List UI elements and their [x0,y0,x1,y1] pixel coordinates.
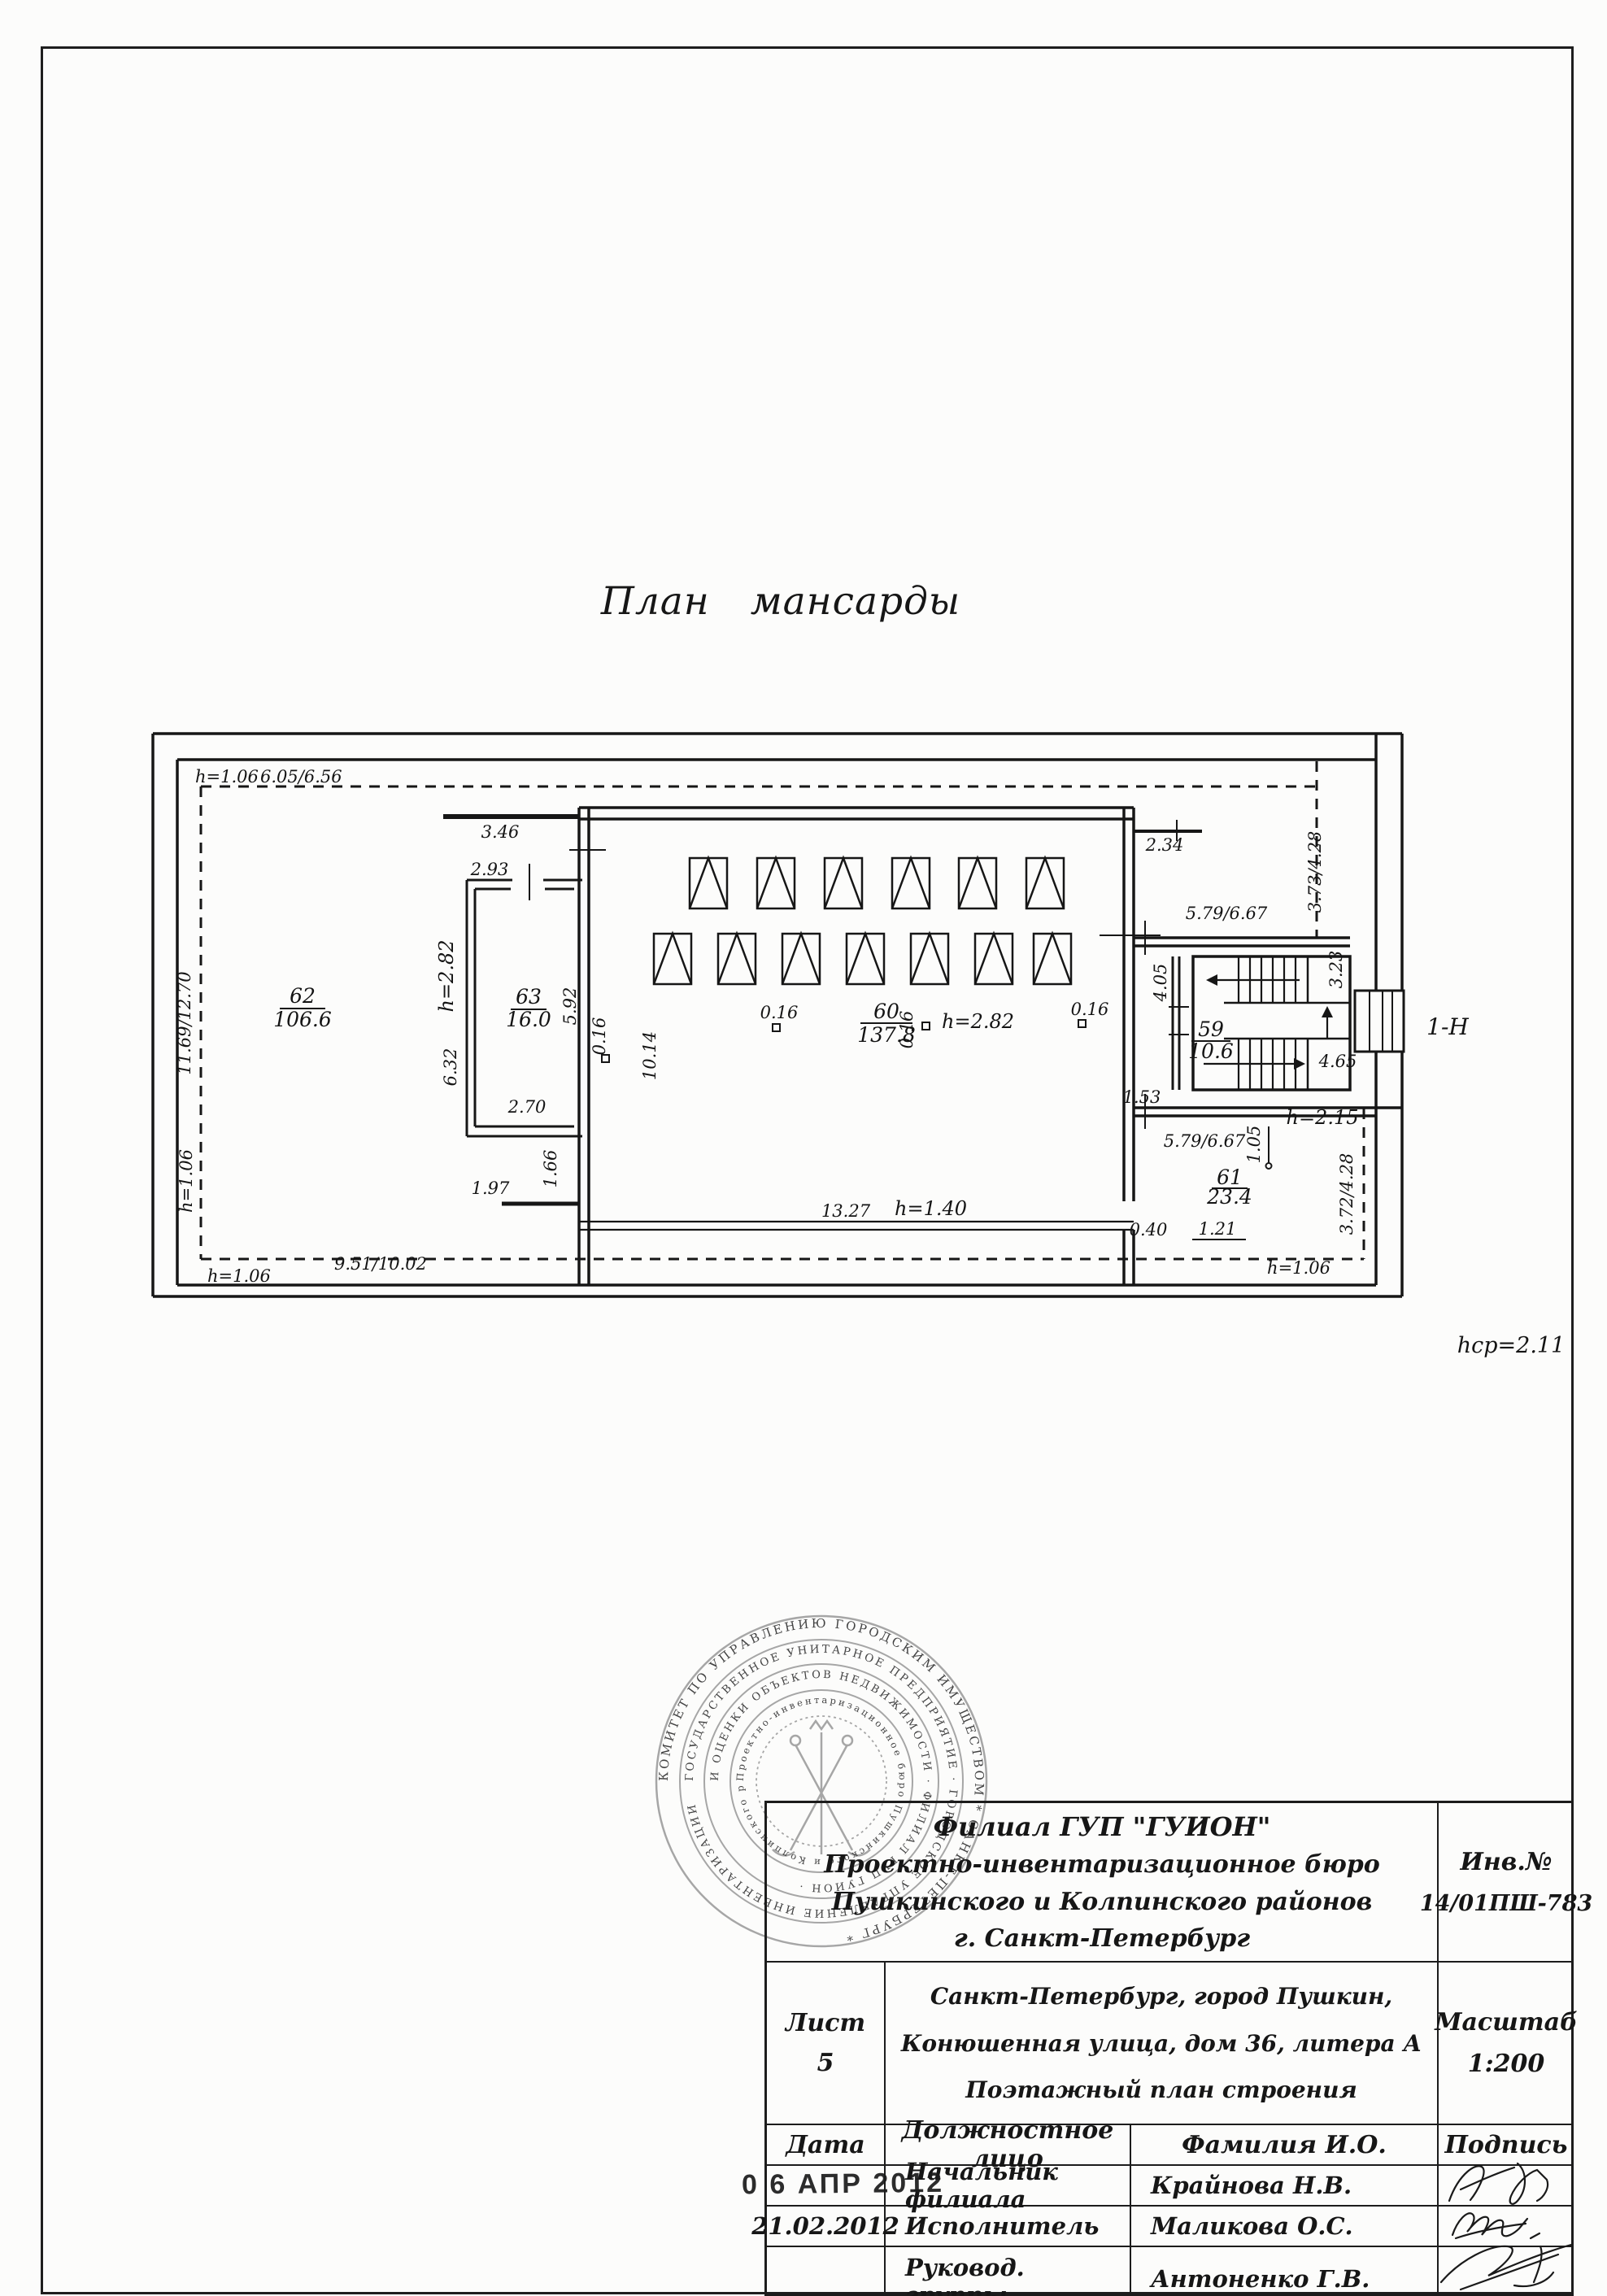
signature-krainova [1449,2163,1548,2204]
entrance-steps [1355,991,1404,1052]
inventory-label: Инв.№ [1461,1848,1553,1876]
row2-name: Маликова О.С. [1131,2207,1439,2247]
dim-h106-top-left: h=1.06 [195,767,259,786]
sheet-cell: Лист 5 [767,1963,886,2125]
dim-016-a: 0.16 [590,1017,609,1056]
room61-area: 23.4 [1206,1185,1252,1209]
signature-antonenko [1441,2245,1571,2289]
dim-105: 1.05 [1244,1126,1264,1164]
signatures [1436,2123,1578,2296]
header-date: Дата [767,2125,886,2166]
address-line-1: Санкт-Петербург, город Пушкин, [930,1983,1392,2010]
dim-405: 4.05 [1151,964,1170,1003]
dim-197: 1.97 [472,1178,510,1198]
plan-labels: h=1.06 6.05/6.56 11.69/12.70 h=1.06 h=1.… [175,767,1565,1358]
org-line-3: Пушкинского и Колпинского районов [832,1888,1373,1916]
sheet-label: Лист [786,2009,865,2037]
room-61-walls [1134,1108,1402,1116]
dim-h106-bottom-right: h=1.06 [1267,1258,1330,1278]
address-cell: Санкт-Петербург, город Пушкин, Конюшенна… [886,1963,1439,2125]
room62-area: 106.6 [273,1008,332,1031]
scale-label: Масштаб [1435,2008,1578,2037]
header-name: Фамилия И.О. [1131,2125,1439,2166]
dim-465: 4.65 [1318,1052,1357,1071]
dim-632: 6.32 [441,1048,460,1087]
opening-ticks [529,850,1189,1129]
dim-605-656: 6.05/6.56 [260,767,342,786]
inventory-cell: Инв.№ 14/01ПШ-783 [1439,1803,1574,1963]
dim-h282-room60: h=2.82 [942,1010,1014,1033]
row1-name: Крайнова Н.В. [1131,2166,1439,2207]
dim-1014: 10.14 [640,1031,660,1080]
scale-cell: Масштаб 1:200 [1439,1963,1574,2125]
signature-malikova [1452,2213,1539,2238]
date-stamp: 0 6 АПР 2012 [742,2167,953,2202]
org-line-1: Филиал ГУП "ГУИОН" [934,1811,1271,1842]
dim-293: 2.93 [470,860,509,879]
room63-area: 16.0 [506,1008,551,1031]
room60-number: 60 [873,1000,899,1023]
dim-372-428: 3.72/4.28 [1337,1153,1357,1235]
scale-value: 1:200 [1468,2050,1545,2078]
scanned-floor-plan-sheet: План мансарды [0,0,1607,2296]
dim-579-bottom: 5.79/6.67 [1164,1131,1246,1151]
row3-name: Антоненко Г.В. [1131,2247,1439,2296]
dim-323: 3.23 [1326,951,1346,989]
room62-number: 62 [290,984,316,1008]
room59-area: 10.6 [1188,1039,1234,1063]
row2-official: Исполнитель [886,2207,1131,2247]
address-line-2: Конюшенная улица, дом 36, литера А [901,2030,1422,2057]
dim-153: 1.53 [1123,1087,1161,1107]
dim-h215: h=2.15 [1286,1106,1358,1129]
dim-951-1002: 9.51/10.02 [334,1254,427,1274]
skylights-bottom-row [654,934,1071,984]
org-cell: Филиал ГУП "ГУИОН" Проектно-инвентаризац… [767,1803,1439,1963]
dim-h140: h=1.40 [895,1197,967,1220]
room59-number: 59 [1198,1017,1224,1041]
org-line-2: Проектно-инвентаризационное бюро [824,1850,1380,1879]
dim-h106-bottom-left: h=1.06 [207,1266,271,1286]
room63-number: 63 [516,985,542,1009]
dim-016-b: 0.16 [760,1003,799,1022]
dim-270: 2.70 [507,1097,547,1117]
dim-1327: 13.27 [821,1201,871,1221]
dim-121: 1.21 [1199,1219,1237,1239]
dim-016-c: 0.16 [897,1011,917,1049]
dim-1169-1270: 11.69/12.70 [175,971,194,1074]
row3-official: Руковод. группы [886,2247,1131,2296]
row3-date-cell [767,2247,886,2296]
dim-016-d: 0.16 [1071,1000,1109,1019]
dim-373-428: 3.73/4.28 [1305,831,1325,913]
dim-h282-room63: h=2.82 [435,939,458,1012]
dim-234: 2.34 [1145,835,1184,855]
floor-plan-drawing: h=1.06 6.05/6.56 11.69/12.70 h=1.06 h=1.… [0,0,1607,1423]
dim-h106-left: h=1.06 [176,1149,196,1213]
dim-040: 0.40 [1130,1220,1168,1239]
dim-592: 5.92 [560,987,580,1026]
average-height-note: hср=2.11 [1457,1333,1566,1358]
entrance-label: 1-Н [1426,1013,1469,1040]
sheet-number: 5 [817,2049,834,2077]
inventory-number: 14/01ПШ-783 [1420,1891,1592,1916]
address-line-3: Поэтажный план строения [965,2076,1357,2103]
row2-date: 21.02.2012 [767,2207,886,2247]
dim-166: 1.66 [541,1150,560,1188]
dim-579-top: 5.79/6.67 [1186,904,1268,923]
org-line-4: г. Санкт-Петербург [954,1924,1250,1953]
dim-346: 3.46 [481,822,520,842]
skylights-top-row [690,858,1064,908]
